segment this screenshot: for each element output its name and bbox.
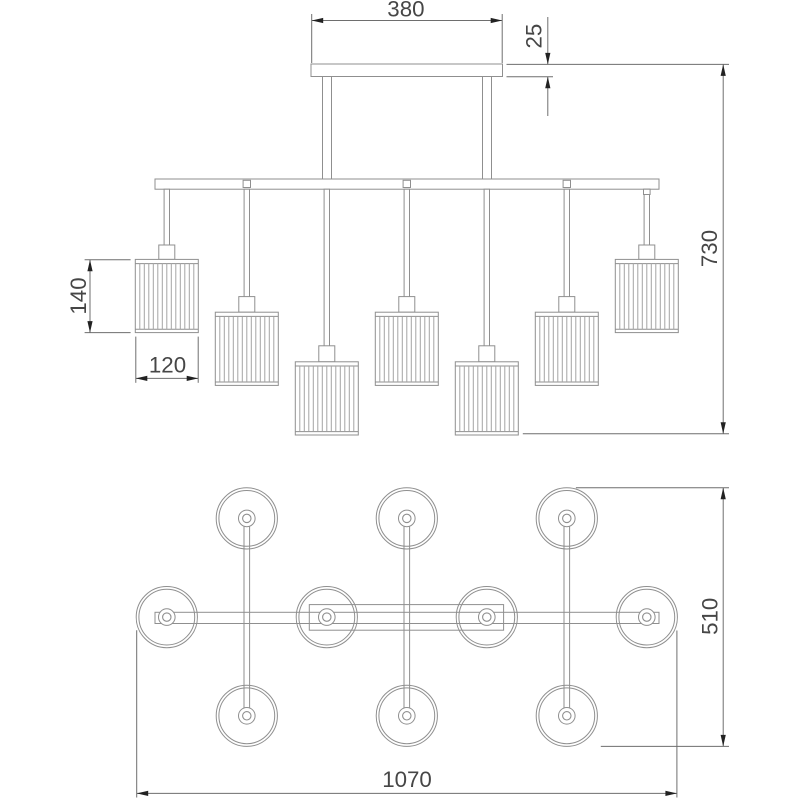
- svg-text:380: 380: [387, 0, 424, 22]
- svg-text:730: 730: [697, 230, 722, 267]
- svg-text:25: 25: [521, 24, 546, 49]
- svg-text:1070: 1070: [382, 767, 432, 792]
- svg-text:510: 510: [698, 598, 723, 635]
- svg-text:120: 120: [149, 353, 186, 378]
- svg-text:140: 140: [66, 277, 91, 314]
